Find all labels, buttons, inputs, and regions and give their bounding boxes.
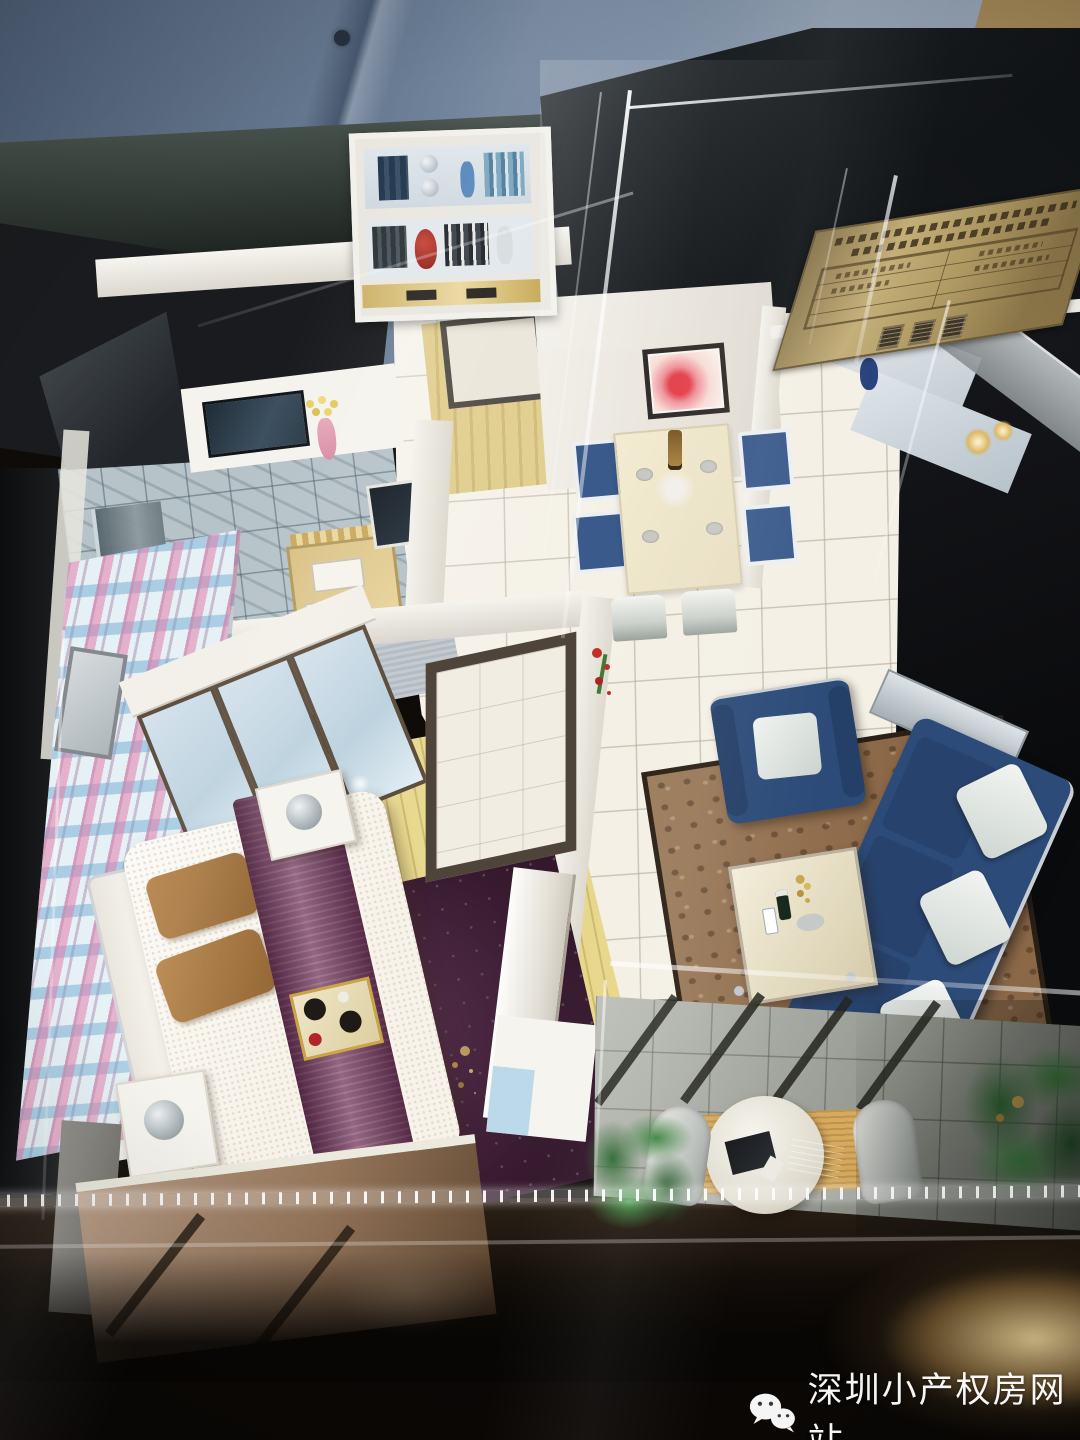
cup [337,991,350,1004]
bedroom-door [426,632,577,883]
cabinet-side-panel [486,1066,535,1136]
dining-chair [741,502,798,566]
small-jar [762,907,779,935]
ceiling-light-reflection [994,422,1012,440]
cake-print-art [650,350,723,412]
tray-plate [302,996,328,1022]
dining-chair-back [681,588,738,636]
table-caster [734,986,744,996]
plate [636,468,653,481]
tray-plate [337,1008,363,1034]
shelf-row [363,143,531,209]
dried-plant-decor [460,1046,470,1056]
light-flare [330,1248,490,1332]
table-lamp [286,794,322,830]
plate [642,530,659,543]
watermark: 深圳小产权房网站 [748,1362,1080,1440]
white-cushion [752,712,822,780]
potted-plant [572,1104,708,1240]
wall-flower-decal [592,648,602,658]
dining-chair [737,428,794,492]
books [378,156,410,201]
shelf-base [362,279,541,308]
silver-ornament [420,154,439,173]
wechat-icon [748,1390,798,1436]
silver-tray [795,912,825,933]
plate [700,460,717,473]
ceiling-light-reflection [966,430,990,454]
blue-armchair [709,676,867,825]
table-lamp [144,1100,184,1140]
silver-ornament [420,178,439,197]
table-flowers [656,468,694,510]
red-vase [414,229,437,270]
entry-door [440,311,549,409]
dark-ornament [406,290,436,301]
framed-wall-art [642,343,730,420]
blue-vase [860,358,878,390]
shirt-button [334,30,350,46]
plate [706,522,723,535]
photo-miniature-apartment-model: 深圳小产权房网站 [0,0,1080,1440]
watermark-text: 深圳小产权房网站 [808,1362,1080,1440]
gold-flowers [795,874,805,884]
wine-bottle [668,430,682,470]
rose [307,1032,323,1048]
coffee-table [728,847,878,1006]
dark-ornament [466,288,496,299]
blue-vase [460,161,475,197]
dining-chair-back [611,594,668,642]
flower-bouquet [306,400,314,408]
books [484,151,526,196]
balcony-shadow [856,1000,1080,1235]
bottle [775,889,792,921]
